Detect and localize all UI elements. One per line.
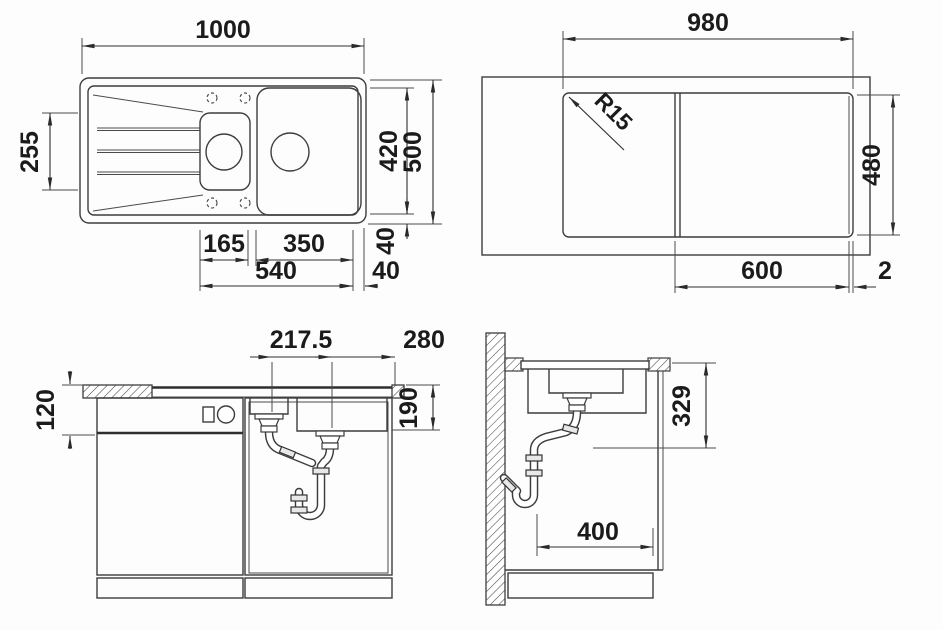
- sink-body-section: [528, 369, 646, 413]
- bowl-inner-section: [549, 369, 623, 393]
- small-bowl-drain: [206, 134, 242, 170]
- sink-dimension-drawing: 1000 255 420 500 40 165: [0, 0, 943, 630]
- dim-label-500: 500: [399, 131, 427, 173]
- dim-cabinet-clearance: 400: [537, 514, 653, 556]
- large-bowl-section: [297, 398, 387, 431]
- tap-hole-bottom-left: [207, 198, 217, 208]
- tap-hole-bottom-right: [240, 198, 250, 208]
- dim-bowl-section: 600 2: [675, 241, 892, 293]
- counter-right-stub: [648, 358, 670, 371]
- dim-label-280: 280: [403, 326, 445, 354]
- view-side-section: 329 400: [486, 333, 716, 605]
- dim-label-190: 190: [395, 387, 423, 429]
- wall-section: [486, 333, 505, 605]
- dim-label-980: 980: [687, 9, 729, 37]
- view-front-section: 120 217.5 280 190: [32, 326, 445, 598]
- strainer-small: [255, 414, 283, 432]
- dim-right-side: 420 500 40: [368, 80, 442, 255]
- dim-clearance-below: 329: [593, 363, 716, 448]
- dim-bottom-row: 165 350 540 40: [200, 228, 400, 291]
- strainer-side: [563, 393, 591, 411]
- waste-pipes: [269, 432, 330, 516]
- dim-label-600: 600: [741, 257, 783, 285]
- counter-left-stub: [505, 358, 523, 371]
- dim-cutout-depth: 480: [857, 95, 900, 235]
- sink-rim-side: [521, 361, 649, 369]
- tap-hole-top-right: [240, 93, 250, 103]
- dim-label-540: 540: [255, 257, 297, 285]
- dim-label-2: 2: [878, 257, 892, 285]
- strainer-large: [316, 431, 344, 449]
- view-top-plan: 1000 255 420 500 40 165: [16, 16, 442, 291]
- dim-label-1000: 1000: [195, 16, 251, 44]
- dim-bowl-front-depth: 255: [16, 113, 78, 190]
- dim-corner-radius: R15: [569, 87, 638, 150]
- plinth-right: [245, 578, 392, 598]
- dim-label-480: 480: [858, 144, 886, 186]
- dim-label-217-5: 217.5: [270, 326, 333, 354]
- small-bowl-section: [250, 398, 288, 414]
- dim-bowl-depth: 190: [392, 385, 440, 430]
- dim-label-400: 400: [577, 518, 619, 546]
- dim-label-120: 120: [32, 389, 60, 431]
- dim-overall-width: 1000: [82, 16, 364, 74]
- waste-pipes-side: [502, 412, 579, 504]
- dim-apron-height: 120: [32, 371, 95, 449]
- technical-drawing-canvas: 1000 255 420 500 40 165: [0, 0, 943, 630]
- plinth-side: [508, 573, 653, 598]
- switch-icon: [203, 407, 214, 422]
- dim-label-350: 350: [283, 230, 325, 258]
- dim-label-165: 165: [203, 230, 245, 258]
- cabinet-left: [97, 398, 243, 575]
- dim-label-329: 329: [668, 385, 696, 427]
- countertop-left-section: [83, 385, 152, 398]
- plinth-left: [97, 578, 243, 598]
- dim-label-255: 255: [16, 131, 44, 173]
- drainboard-grooves: [93, 95, 203, 211]
- dim-label-40-bottom: 40: [372, 227, 400, 255]
- dim-label-r15: R15: [590, 87, 638, 135]
- knob-icon: [218, 406, 235, 423]
- tap-hole-top-left: [207, 93, 217, 103]
- large-bowl-drain: [271, 133, 309, 171]
- view-cutout-plan: R15 980 480 600 2: [482, 9, 900, 293]
- countertop-outline: [482, 77, 870, 255]
- dim-label-40-right: 40: [372, 257, 400, 285]
